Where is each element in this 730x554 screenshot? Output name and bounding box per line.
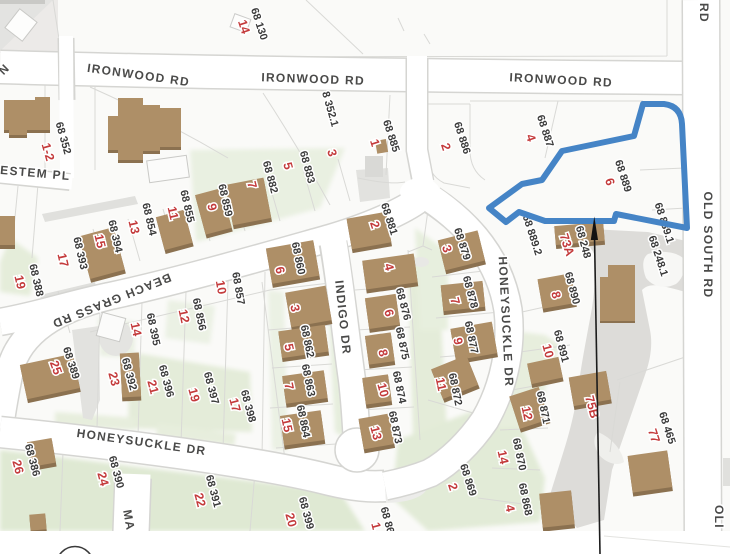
svg-text:12: 12 (176, 308, 193, 325)
svg-text:14: 14 (128, 321, 145, 338)
svg-text:OLI: OLI (712, 505, 726, 529)
svg-text:OLD SOUTH RD: OLD SOUTH RD (701, 192, 715, 299)
svg-text:10: 10 (213, 279, 229, 295)
svg-text:14: 14 (495, 449, 512, 466)
svg-text:RD: RD (697, 3, 711, 23)
svg-text:12: 12 (519, 405, 536, 422)
svg-text:15: 15 (279, 417, 296, 434)
